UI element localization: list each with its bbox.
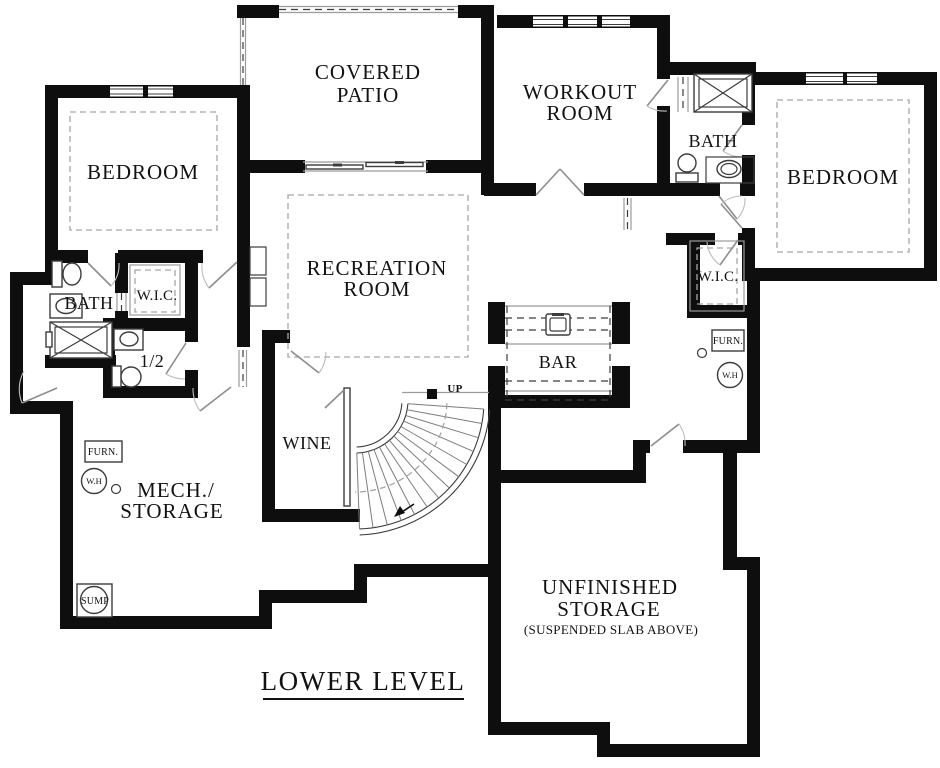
door-bedroom-to-bath-left: [88, 263, 119, 286]
label-bath-upper: BATH: [688, 131, 737, 151]
door-half-bath: [166, 343, 186, 379]
floor-plan-drawing: BEDROOM COVERED PATIO WORKOUT ROOM BATH …: [0, 0, 940, 768]
label-wh-right: W.H: [722, 370, 738, 380]
floor-plan-page: BEDROOM COVERED PATIO WORKOUT ROOM BATH …: [0, 0, 940, 768]
window-bedroom-right: [806, 74, 877, 84]
door-hall-to-mech: [193, 387, 231, 411]
label-bath-left: BATH: [64, 293, 113, 313]
stair-newel-post: [427, 389, 437, 399]
label-bedroom-left: BEDROOM: [87, 160, 199, 184]
window-workout-room: [533, 17, 630, 27]
shower-icon-bath-upper: [694, 74, 752, 112]
shower-icon-bath-left: [46, 322, 112, 358]
plan-title: LOWER LEVEL: [261, 666, 466, 699]
fixtures: [46, 74, 754, 617]
stair-headroom-dash: [355, 403, 447, 492]
walls: [10, 5, 937, 757]
label-covered-patio-2: PATIO: [337, 83, 400, 107]
label-unfinished-3: (SUSPENDED SLAB ABOVE): [524, 622, 698, 637]
window-bedroom-left: [110, 87, 173, 97]
label-furn-left: FURN.: [88, 447, 118, 458]
door-wine: [291, 351, 326, 373]
label-wh-left: W.H: [86, 476, 102, 486]
toilet-icon-half-bath: [112, 366, 141, 387]
door-mech-left: [19, 371, 57, 403]
label-wic-left: W.I.C.: [137, 288, 178, 304]
label-sump: SUMP: [81, 596, 109, 607]
label-furn-right: FURN.: [713, 336, 743, 347]
toilet-icon-bath-upper: [676, 154, 698, 182]
page-title: LOWER LEVEL: [261, 666, 466, 696]
sink-icon-half-bath: [114, 329, 143, 350]
label-wic-right: W.I.C.: [698, 269, 739, 285]
door-unfinished-storage: [651, 424, 685, 446]
door-hall-to-bedroom-left: [202, 262, 237, 288]
stair-door-leaf: [344, 388, 350, 506]
label-recreation-2: ROOM: [343, 277, 410, 301]
label-bar: BAR: [539, 352, 578, 372]
label-unfinished-2: STORAGE: [557, 597, 660, 621]
label-bedroom-right: BEDROOM: [787, 165, 899, 189]
media-niche: [250, 247, 266, 306]
label-half-bath: 1/2: [140, 351, 165, 371]
patio-sliding-doors: [303, 161, 428, 171]
toilet-icon-bath-left: [52, 261, 81, 287]
bar-sink-icon: [546, 313, 570, 335]
label-unfinished-1: UNFINISHED: [542, 575, 678, 599]
label-wine: WINE: [283, 433, 332, 453]
label-covered-patio-1: COVERED: [315, 60, 421, 84]
label-workout-2: ROOM: [546, 101, 613, 125]
label-stairs-up: UP: [447, 383, 462, 395]
door-workout-french: [536, 169, 584, 196]
label-mech-2: STORAGE: [120, 499, 223, 523]
